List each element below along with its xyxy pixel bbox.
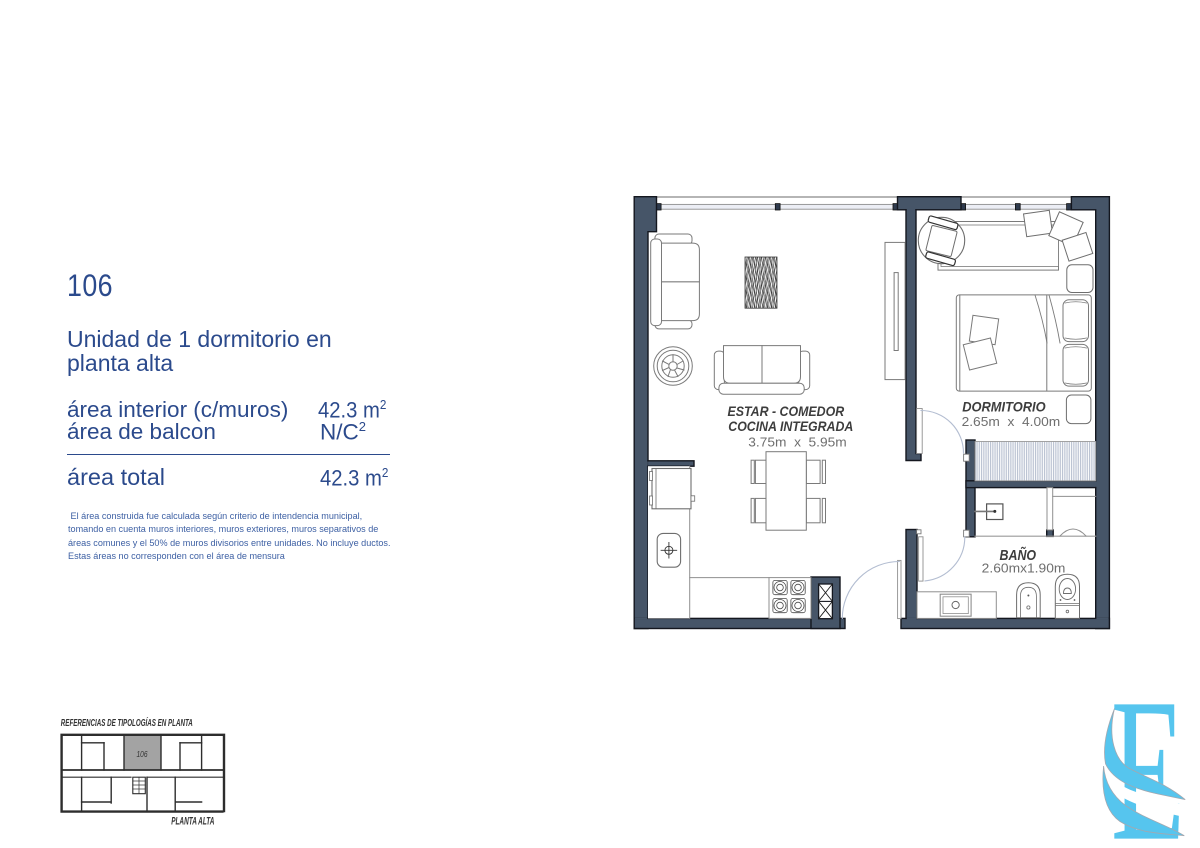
svg-text:2.60mx1.90m: 2.60mx1.90m (982, 561, 1066, 575)
svg-text:2.65m x 4.00m: 2.65m x 4.00m (962, 415, 1061, 429)
svg-text:3.75m x 5.95m: 3.75m x 5.95m (748, 436, 846, 450)
svg-text:COCINA INTEGRADA: COCINA INTEGRADA (728, 418, 853, 434)
svg-text:REFERENCIAS DE TIPOLOGÍAS EN P: REFERENCIAS DE TIPOLOGÍAS EN PLANTA (61, 716, 193, 729)
svg-text:106: 106 (137, 749, 148, 759)
svg-text:DORMITORIO: DORMITORIO (962, 398, 1045, 414)
svg-text:ESTAR - COMEDOR: ESTAR - COMEDOR (728, 403, 845, 419)
svg-text:PLANTA ALTA: PLANTA ALTA (171, 816, 214, 828)
